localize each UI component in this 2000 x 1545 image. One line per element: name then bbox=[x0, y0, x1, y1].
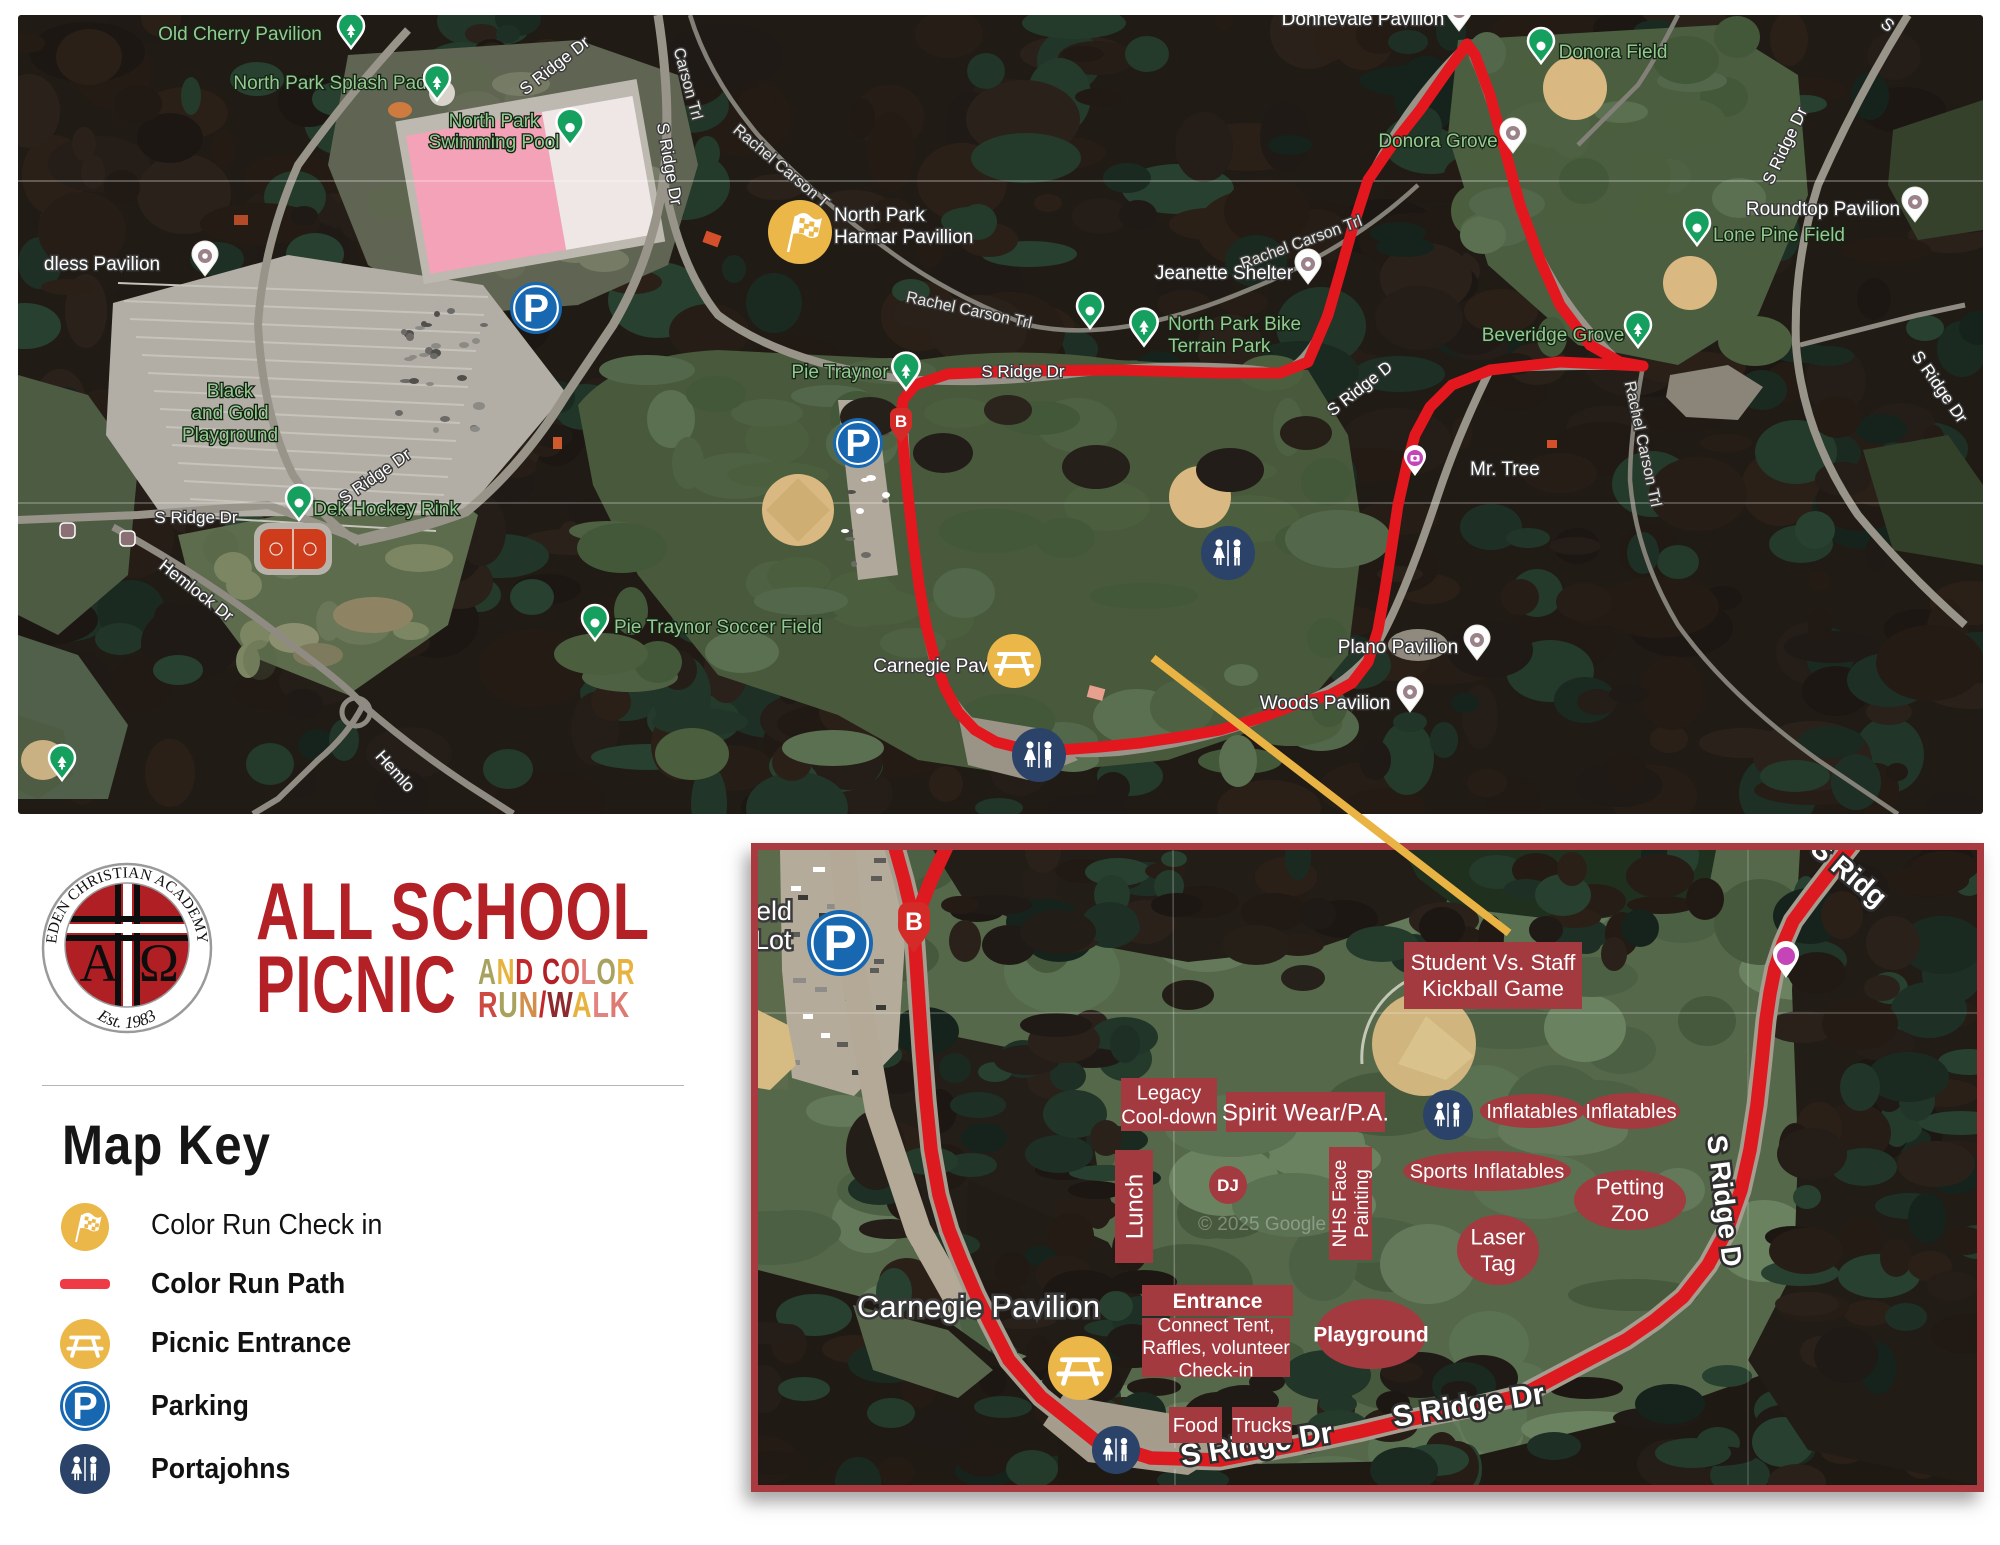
svg-text:ield: ield bbox=[758, 896, 792, 926]
svg-text:© 2025 Google: © 2025 Google bbox=[1198, 1214, 1326, 1235]
svg-text:Plano Pavilion: Plano Pavilion bbox=[1338, 637, 1458, 658]
svg-text:Connect Tent,: Connect Tent, bbox=[1158, 1316, 1275, 1337]
svg-text:Laser: Laser bbox=[1470, 1225, 1525, 1250]
svg-text:Donora Field: Donora Field bbox=[1559, 42, 1668, 63]
svg-text:Beveridge Grove: Beveridge Grove bbox=[1482, 325, 1625, 346]
svg-text:Ω: Ω bbox=[139, 933, 179, 993]
svg-text:S Ridge Dr: S Ridge Dr bbox=[981, 362, 1064, 381]
svg-text:Woods Pavilion: Woods Pavilion bbox=[1260, 693, 1391, 714]
svg-text:Food: Food bbox=[1173, 1415, 1219, 1437]
svg-text:Roundtop Pavilion: Roundtop Pavilion bbox=[1746, 199, 1900, 220]
svg-text:Raffles, volunteer: Raffles, volunteer bbox=[1142, 1338, 1290, 1359]
svg-text:Inflatables: Inflatables bbox=[1486, 1101, 1577, 1123]
svg-text:North Park Splash Pad: North Park Splash Pad bbox=[233, 73, 426, 94]
svg-text:Lone Pine Field: Lone Pine Field bbox=[1713, 225, 1845, 246]
svg-text:North Park: North Park bbox=[449, 111, 540, 132]
svg-text:Cool-down: Cool-down bbox=[1121, 1106, 1217, 1128]
svg-text:and Gold: and Gold bbox=[191, 403, 268, 424]
svg-text:Lot: Lot bbox=[758, 925, 792, 955]
svg-text:B: B bbox=[905, 909, 923, 936]
svg-text:Playground: Playground bbox=[182, 425, 278, 446]
svg-text:North Park: North Park bbox=[834, 205, 925, 226]
svg-text:Playground: Playground bbox=[1313, 1323, 1429, 1346]
svg-text:Carnegie Pavil: Carnegie Pavil bbox=[873, 656, 997, 677]
svg-text:dless Pavilion: dless Pavilion bbox=[44, 254, 160, 275]
svg-text:Carnegie Pavilion: Carnegie Pavilion bbox=[857, 1289, 1100, 1324]
svg-text:Zoo: Zoo bbox=[1611, 1201, 1649, 1226]
svg-text:P: P bbox=[823, 915, 856, 971]
svg-text:Sports Inflatables: Sports Inflatables bbox=[1410, 1161, 1565, 1183]
svg-text:Donora Grove: Donora Grove bbox=[1378, 131, 1497, 152]
svg-text:Trucks: Trucks bbox=[1232, 1415, 1291, 1437]
svg-text:Petting: Petting bbox=[1596, 1175, 1665, 1200]
svg-text:Harmar Pavillion: Harmar Pavillion bbox=[834, 227, 973, 248]
svg-text:Legacy: Legacy bbox=[1137, 1083, 1202, 1105]
svg-text:Donnevale Pavilion: Donnevale Pavilion bbox=[1282, 15, 1445, 30]
svg-text:P: P bbox=[523, 288, 549, 331]
svg-text:Student Vs. Staff: Student Vs. Staff bbox=[1411, 950, 1577, 975]
svg-text:Kickball Game: Kickball Game bbox=[1422, 976, 1564, 1001]
svg-text:Terrain Park: Terrain Park bbox=[1168, 336, 1271, 357]
svg-text:Spirit Wear/P.A.: Spirit Wear/P.A. bbox=[1222, 1099, 1389, 1126]
svg-text:Pie Traynor Soccer Field: Pie Traynor Soccer Field bbox=[614, 617, 822, 638]
svg-text:Pie Traynor: Pie Traynor bbox=[791, 362, 889, 383]
svg-text:B: B bbox=[895, 412, 907, 431]
svg-text:Mr. Tree: Mr. Tree bbox=[1470, 459, 1540, 480]
svg-text:S Ridge Dr: S Ridge Dr bbox=[154, 508, 237, 527]
svg-text:DJ: DJ bbox=[1217, 1176, 1239, 1195]
svg-text:Inflatables: Inflatables bbox=[1585, 1101, 1676, 1123]
svg-text:P: P bbox=[845, 423, 870, 465]
svg-text:North Park Bike: North Park Bike bbox=[1168, 314, 1301, 335]
svg-text:Black: Black bbox=[207, 381, 254, 402]
svg-text:Jeanette Shelter: Jeanette Shelter bbox=[1155, 263, 1294, 284]
svg-text:NHS Face: NHS Face bbox=[1330, 1160, 1351, 1248]
svg-text:Check-in: Check-in bbox=[1179, 1361, 1254, 1382]
svg-text:Lunch: Lunch bbox=[1121, 1174, 1148, 1239]
svg-text:Entrance: Entrance bbox=[1173, 1290, 1263, 1313]
svg-text:Painting: Painting bbox=[1352, 1169, 1373, 1238]
svg-text:Swimming Pool: Swimming Pool bbox=[429, 132, 560, 153]
svg-text:Tag: Tag bbox=[1480, 1251, 1515, 1276]
svg-text:Α: Α bbox=[80, 933, 119, 993]
svg-text:P: P bbox=[72, 1386, 97, 1428]
svg-text:Old Cherry Pavilion: Old Cherry Pavilion bbox=[158, 24, 322, 45]
svg-text:Dek Hockey Rink: Dek Hockey Rink bbox=[313, 499, 459, 520]
